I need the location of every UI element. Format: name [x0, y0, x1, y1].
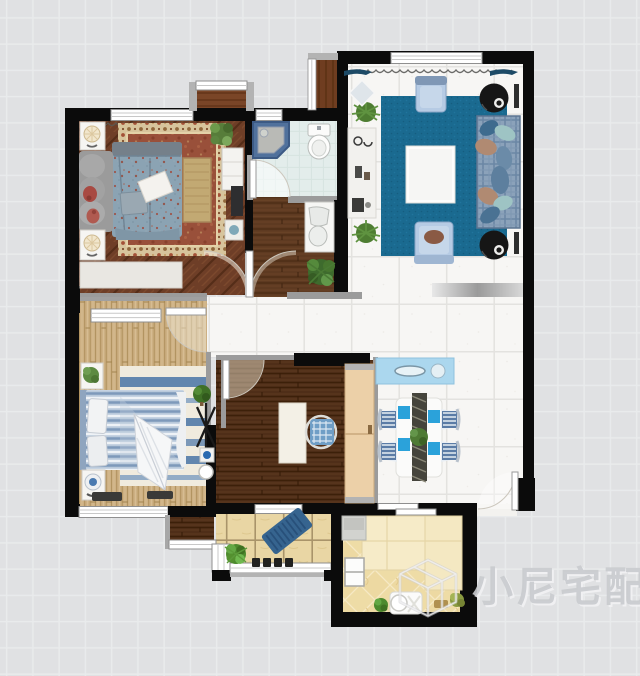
svg-text:小尼宅配: 小尼宅配: [472, 564, 640, 610]
